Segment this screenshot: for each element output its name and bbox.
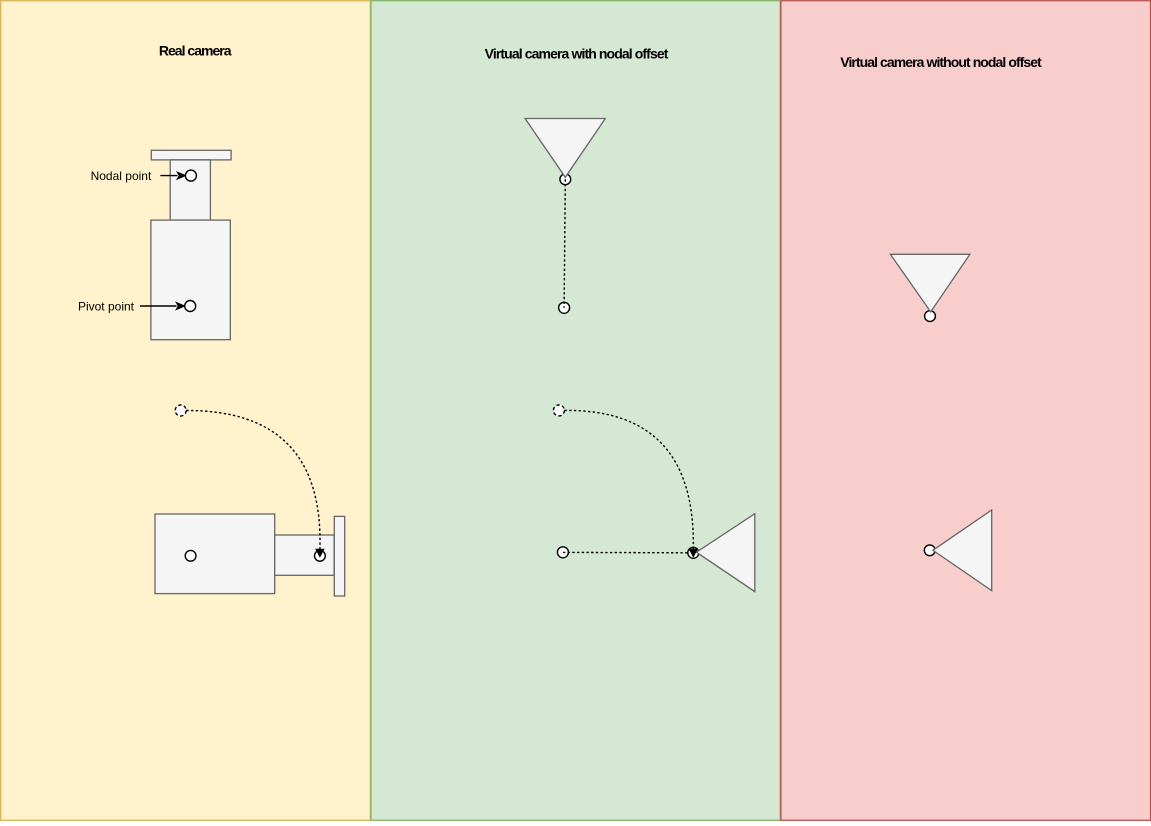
svg-text:Nodal point: Nodal point [91,169,152,183]
svg-text:Pivot point: Pivot point [78,299,135,313]
svg-text:Real camera: Real camera [159,42,232,58]
svg-text:Virtual camera without nodal o: Virtual camera without nodal offset [840,54,1042,70]
svg-text:Virtual camera with nodal offs: Virtual camera with nodal offset [485,46,669,62]
